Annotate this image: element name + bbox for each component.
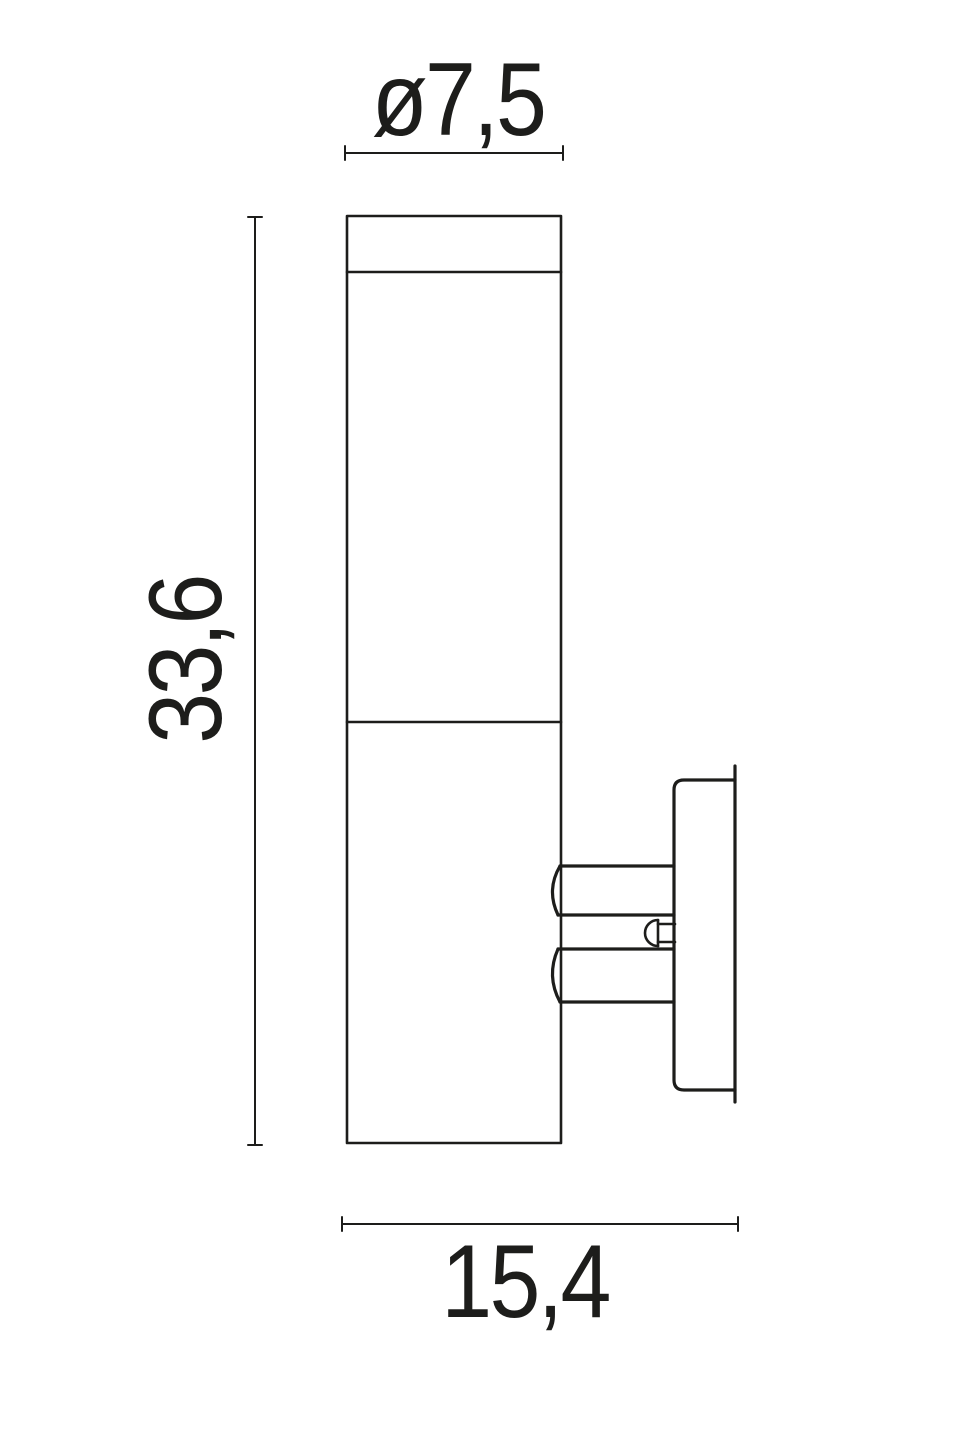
- lamp-body: [347, 216, 561, 1143]
- arm-lower-joint-arc: [552, 949, 560, 1002]
- technical-drawing-canvas: ø7,5 33,6 15,4: [0, 0, 970, 1446]
- height-dimension-label: 33,6: [134, 576, 238, 744]
- arm-upper-joint-arc: [552, 866, 560, 915]
- screw-head-dome: [645, 920, 658, 946]
- lamp-body-outline: [347, 216, 561, 1143]
- width-dimension-label: 15,4: [441, 1230, 609, 1334]
- diameter-dimension-label: ø7,5: [372, 48, 545, 152]
- left-height-dimension: [248, 217, 262, 1145]
- screw-detail: [645, 920, 675, 946]
- mount-plate-outline: [674, 780, 735, 1090]
- wall-mount: [552, 766, 735, 1102]
